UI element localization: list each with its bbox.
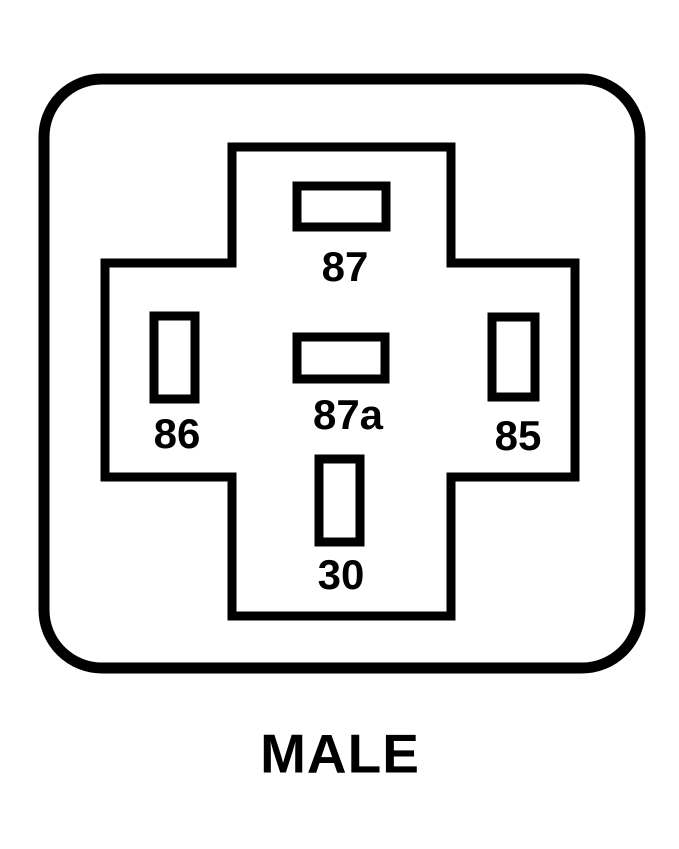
- pin-label-30: 30: [318, 554, 365, 596]
- pin-label-85: 85: [495, 415, 542, 457]
- pin-slot-87a: [297, 337, 385, 379]
- relay-pinout-diagram: 87 87a 86 85 30 MALE: [0, 0, 679, 849]
- pin-slot-86: [154, 316, 195, 399]
- pin-slot-30: [319, 459, 360, 542]
- pin-slot-87: [297, 186, 386, 227]
- pin-slot-85: [492, 317, 535, 397]
- pin-label-86: 86: [154, 413, 201, 455]
- connector-gender-caption: MALE: [260, 727, 420, 782]
- pin-label-87: 87: [322, 246, 369, 288]
- pin-label-87a: 87a: [313, 394, 383, 436]
